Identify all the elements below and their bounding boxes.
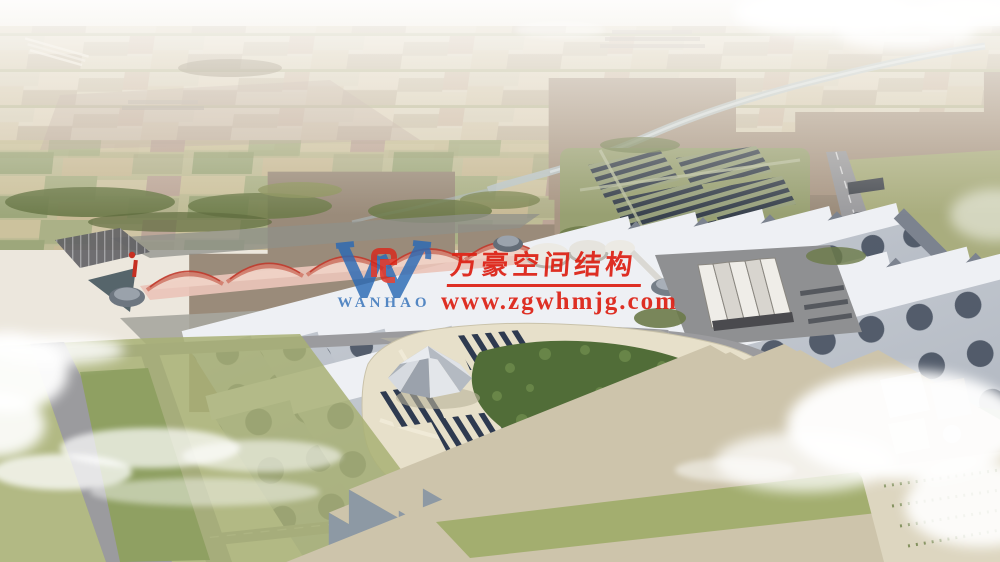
company-name-watermark: 万豪空间结构 [447, 251, 643, 287]
company-logo [333, 240, 435, 298]
logo-wordmark: WANHAO [331, 295, 437, 312]
aerial-rendering: WANHAO 万豪空间结构 www.zgwhmjg.com [0, 0, 1000, 562]
website-watermark: www.zgwhmjg.com [441, 288, 678, 316]
